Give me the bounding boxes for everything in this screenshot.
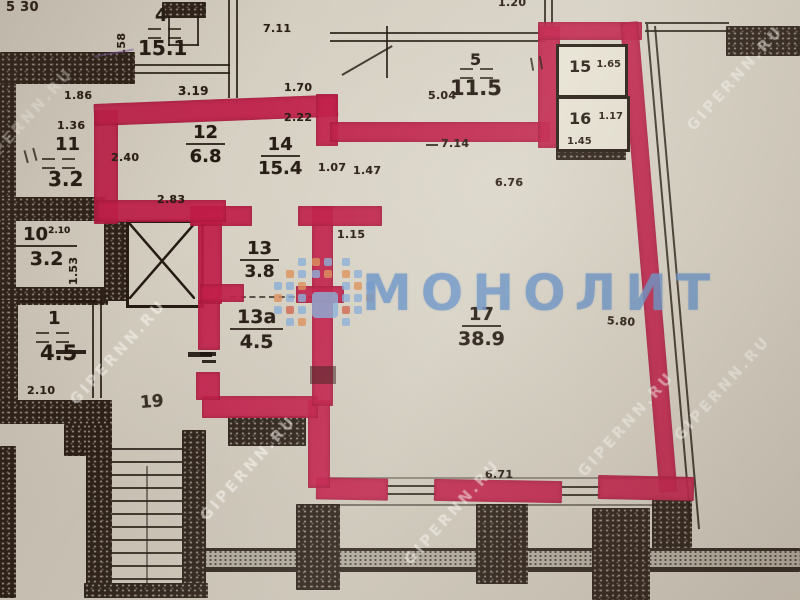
wall-segment [0, 446, 16, 598]
apartment-outline-segment [196, 372, 220, 400]
pillar [592, 508, 650, 600]
room-area: 6.8 [190, 145, 222, 168]
floorplan-photo: 15 1.65 16 1.17 1.45 4 15.1 11 3.2 102.1… [0, 0, 800, 600]
room-area: 38.9 [458, 327, 505, 351]
dim-top-center: 1.20 [498, 0, 526, 9]
wall-line [228, 0, 230, 98]
wall-line [330, 504, 692, 506]
dim-top-left: 5 30 [6, 0, 39, 15]
room-label-4: 4 [155, 5, 168, 26]
window-line [562, 486, 600, 488]
wall-line [197, 16, 199, 46]
dim-5-04: 5.04 [428, 89, 456, 102]
dim-2-40: 2.40 [111, 151, 139, 164]
room-number: 16 [569, 109, 591, 128]
wall-segment [0, 197, 106, 221]
dim-2-10: 2.10 [27, 384, 55, 397]
dim-6-76: 6.76 [495, 176, 523, 189]
apartment-outline-segment [200, 284, 244, 302]
apartment-outline-segment [298, 206, 382, 226]
stairwell-wall [86, 424, 112, 594]
shaft-x-icon [129, 223, 195, 299]
pen-marks [530, 56, 543, 71]
room-area-1: 4.5 [40, 341, 77, 365]
room-number: 12 [186, 124, 225, 145]
wall-line [134, 72, 230, 74]
dim-1-47: 1.47 [353, 164, 381, 177]
dim-1-86: 1.86 [64, 89, 92, 102]
dim-7-11: 7.11 [263, 22, 291, 35]
apartment-outline-segment [198, 300, 220, 350]
room-area: 3.8 [244, 261, 274, 282]
door-mark [202, 360, 216, 363]
door-mark [200, 352, 216, 356]
door-opening-shadow [310, 366, 336, 384]
room-area: 15.4 [258, 157, 302, 180]
pen-marks [24, 148, 38, 163]
apartment-outline-segment [330, 122, 550, 142]
window-line [330, 40, 546, 42]
room-number: 14 [261, 136, 300, 157]
room-height-note: 2.10 [48, 226, 70, 236]
window-line [386, 493, 436, 495]
window-line [330, 32, 546, 34]
wall-line [134, 64, 230, 66]
room-label-14: 14 15.4 [258, 136, 302, 179]
room-box-16: 16 1.17 1.45 [556, 96, 630, 152]
dim-tick [426, 144, 438, 146]
wall-line [645, 30, 729, 32]
room-label-11: 11 [55, 134, 80, 155]
room-area-5: 11.5 [450, 76, 502, 100]
dim-7-14: 7.14 [441, 137, 469, 150]
dim-2-83: 2.83 [157, 193, 185, 206]
dim-1-15: 1.15 [337, 228, 365, 241]
wall-segment [104, 221, 128, 301]
wall-segment [0, 300, 18, 400]
room-label-5: 5 [470, 50, 481, 69]
pillar [476, 504, 528, 584]
pillar [296, 504, 340, 590]
wall-line [20, 300, 96, 302]
apartment-outline-segment [598, 475, 694, 501]
room-area: 4.5 [240, 330, 274, 354]
dim-3-58: 3.58 [115, 33, 128, 61]
room-number: 15 [569, 57, 591, 76]
room-label-19: 19 [139, 391, 164, 413]
stair-step [112, 461, 182, 463]
wall-line [236, 0, 238, 98]
wall-segment [0, 400, 112, 424]
room-label-1: 1 [48, 308, 61, 329]
dim-1-07: 1.07 [318, 161, 346, 174]
room-number: 10 [23, 224, 48, 245]
dim-3-19: 3.19 [178, 84, 209, 98]
room-dimension: 1.45 [567, 136, 592, 147]
wall-segment [0, 221, 16, 291]
wall-segment [652, 500, 692, 548]
room-dimension: 1.17 [598, 111, 623, 122]
dim-2-22: 2.22 [284, 111, 312, 124]
room-box-15: 15 1.65 [556, 44, 628, 98]
stair-step [112, 448, 182, 450]
elevator-shaft [126, 220, 204, 308]
room-label-12: 12 6.8 [186, 124, 225, 167]
room-area: 3.2 [30, 247, 64, 271]
dim-1-36: 1.36 [57, 119, 85, 132]
window-line [386, 485, 436, 487]
dim-1-70: 1.70 [284, 81, 312, 94]
room-area-11: 3.2 [48, 167, 83, 191]
dim-1-53: 1.53 [67, 257, 80, 285]
window-line [562, 494, 600, 496]
wall-line [386, 26, 388, 78]
room-area-4: 15.1 [138, 36, 187, 60]
monolit-watermark: МОНОЛИТ [362, 264, 719, 322]
room-dimension: 1.65 [596, 59, 621, 70]
stair-rail-line [146, 466, 148, 590]
wall-line [645, 22, 729, 24]
